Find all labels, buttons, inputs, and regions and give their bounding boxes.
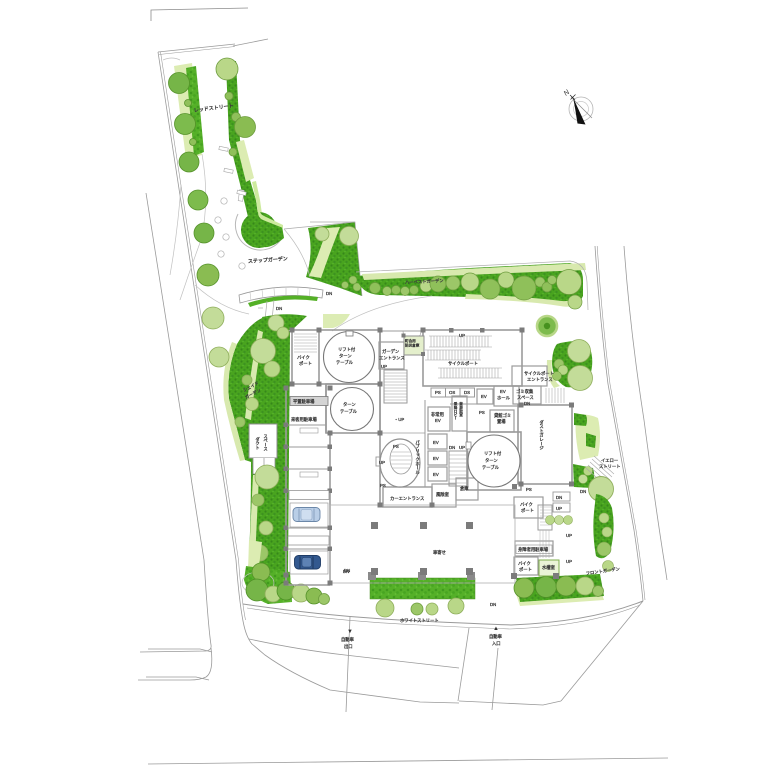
svg-text:平置駐車場: 平置駐車場 <box>293 398 315 405</box>
svg-text:風除室: 風除室 <box>436 491 450 498</box>
svg-text:サイクルポート: サイクルポート <box>524 370 554 377</box>
svg-text:ホワイトストリート: ホワイトストリート <box>400 618 439 623</box>
svg-text:水槽室: 水槽室 <box>542 564 556 571</box>
svg-text:PS: PS <box>435 390 441 395</box>
svg-text:DN: DN <box>556 495 562 500</box>
svg-text:UP: UP <box>566 559 572 564</box>
svg-text:DN: DN <box>326 291 332 296</box>
svg-text:倉庫: 倉庫 <box>460 485 469 492</box>
svg-text:イエロー: イエロー <box>601 458 618 463</box>
svg-text:PS: PS <box>479 410 485 415</box>
svg-text:・UP: ・UP <box>394 417 404 422</box>
svg-text:出口: 出口 <box>344 643 353 650</box>
svg-text:パブリックホール: パブリックホール <box>415 440 421 475</box>
svg-text:UP: UP <box>381 364 387 369</box>
svg-text:ホール: ホール <box>497 396 511 401</box>
svg-text:スペース: スペース <box>517 395 534 400</box>
svg-text:町会用: 町会用 <box>405 338 416 343</box>
svg-text:ポート: ポート <box>299 360 312 366</box>
svg-text:EV: EV <box>433 456 439 461</box>
svg-text:ダストガレージ: ダストガレージ <box>539 419 545 451</box>
svg-text:車寄せ: 車寄せ <box>433 549 446 556</box>
svg-text:PS: PS <box>526 487 532 492</box>
svg-text:OS: OS <box>449 390 455 395</box>
svg-text:ダクト: ダクト <box>255 436 261 451</box>
svg-text:UP: UP <box>459 333 465 338</box>
svg-text:DN: DN <box>524 401 530 406</box>
svg-text:UP: UP <box>379 460 385 465</box>
svg-text:サイクルポート: サイクルポート <box>448 360 478 367</box>
svg-text:EV: EV <box>481 394 487 399</box>
svg-text:スペース: スペース <box>264 434 269 452</box>
svg-text:入口: 入口 <box>492 641 501 646</box>
svg-text:▼: ▼ <box>347 629 353 635</box>
svg-text:ターン: ターン <box>343 401 356 408</box>
svg-text:PS: PS <box>380 483 386 488</box>
svg-text:EV: EV <box>433 472 439 477</box>
svg-text:DS: DS <box>464 390 470 395</box>
svg-text:DN: DN <box>449 445 455 450</box>
svg-text:ストリート: ストリート <box>599 464 620 469</box>
svg-text:ポート: ポート <box>519 566 532 572</box>
svg-text:DN: DN <box>276 306 282 311</box>
svg-text:ガーデン: ガーデン <box>382 348 399 355</box>
svg-text:UP: UP <box>566 533 572 538</box>
svg-text:ポート: ポート <box>521 507 534 513</box>
svg-text:来客用駐車場: 来客用駐車場 <box>291 416 317 423</box>
svg-text:リフト付: リフト付 <box>338 346 356 353</box>
svg-text:非常用: 非常用 <box>431 411 444 418</box>
svg-text:DN: DN <box>343 569 349 574</box>
svg-text:自動車: 自動車 <box>489 633 503 640</box>
svg-text:EV: EV <box>433 440 439 445</box>
svg-text:身障者用駐車場: 身障者用駐車場 <box>518 546 549 553</box>
svg-text:ターン: ターン <box>485 457 498 464</box>
svg-text:貸館ゴミ: 貸館ゴミ <box>494 412 511 419</box>
svg-text:乗降ロビー: 乗降ロビー <box>453 401 458 420</box>
svg-text:防災倉庫: 防災倉庫 <box>405 343 420 348</box>
svg-text:EV: EV <box>435 418 441 423</box>
svg-text:DN: DN <box>490 602 496 607</box>
svg-text:EV: EV <box>500 389 506 394</box>
svg-text:UP: UP <box>556 506 562 511</box>
svg-text:兼荷取室: 兼荷取室 <box>458 401 463 416</box>
svg-text:UP: UP <box>459 445 465 450</box>
svg-text:テーブル: テーブル <box>482 464 500 471</box>
svg-text:リフト付: リフト付 <box>484 450 502 457</box>
svg-text:自動車: 自動車 <box>341 636 355 643</box>
svg-text:テーブル: テーブル <box>336 359 354 366</box>
svg-text:▲: ▲ <box>493 626 499 632</box>
svg-text:ターン: ターン <box>339 353 352 360</box>
svg-text:置場: 置場 <box>497 418 506 425</box>
svg-text:PS: PS <box>393 444 399 449</box>
svg-text:DN: DN <box>580 489 586 494</box>
svg-text:テーブル: テーブル <box>340 408 358 415</box>
svg-text:ゴミ収集: ゴミ収集 <box>516 388 534 395</box>
